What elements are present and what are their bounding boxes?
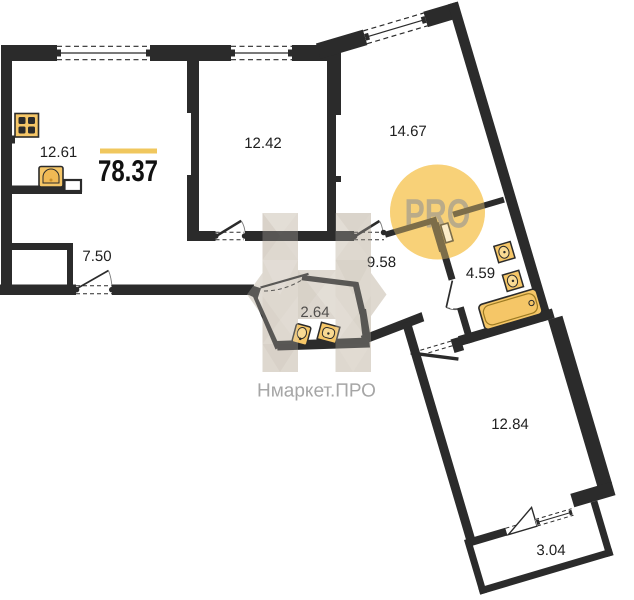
- svg-text:3.04: 3.04: [536, 542, 565, 559]
- svg-text:7.50: 7.50: [82, 248, 111, 265]
- svg-text:4.59: 4.59: [466, 265, 495, 282]
- svg-text:78.37: 78.37: [98, 155, 158, 188]
- svg-text:12.61: 12.61: [40, 144, 78, 161]
- svg-text:12.84: 12.84: [491, 416, 529, 433]
- svg-text:9.58: 9.58: [367, 254, 396, 271]
- svg-text:Нмаркет.ПРО: Нмаркет.ПРО: [257, 381, 376, 402]
- svg-text:12.42: 12.42: [244, 135, 282, 152]
- svg-text:14.67: 14.67: [389, 123, 427, 140]
